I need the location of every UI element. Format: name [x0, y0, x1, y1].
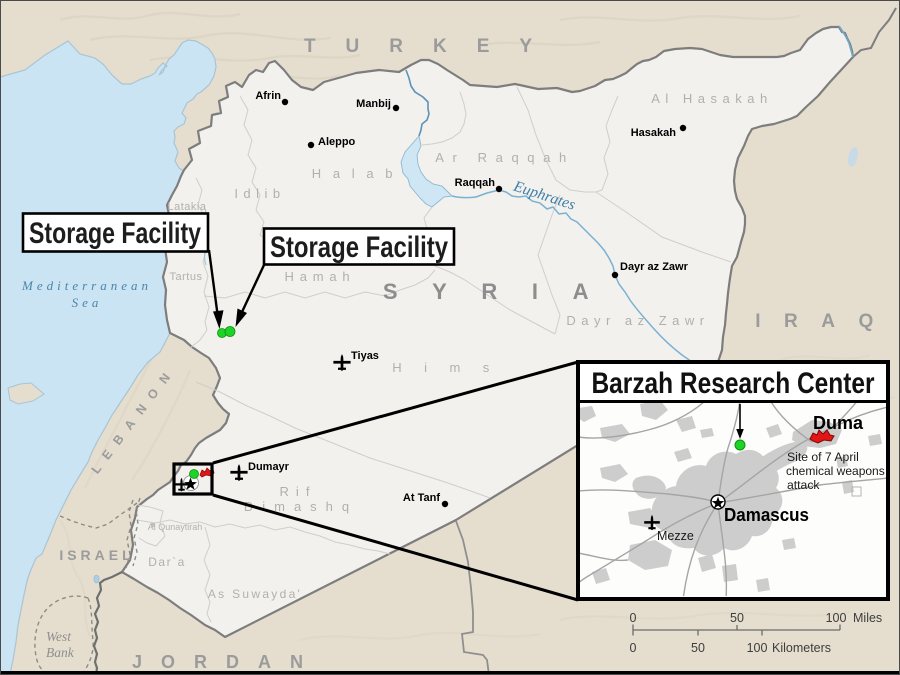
svg-text:Rif: Rif [280, 484, 317, 499]
svg-text:IRAQ: IRAQ [755, 311, 897, 332]
svg-text:Hasakah: Hasakah [631, 127, 677, 139]
svg-text:Latakia: Latakia [168, 201, 207, 213]
svg-text:attack: attack [787, 478, 820, 492]
svg-text:Sea: Sea [72, 295, 103, 310]
svg-text:Idlib: Idlib [234, 186, 285, 201]
svg-text:Tartus: Tartus [170, 271, 203, 283]
svg-text:100: 100 [747, 641, 768, 655]
svg-text:Kilometers: Kilometers [772, 641, 831, 655]
svg-text:0: 0 [630, 611, 637, 625]
svg-text:West: West [46, 629, 72, 644]
svg-text:Site of 7 April: Site of 7 April [787, 450, 859, 464]
svg-text:Duma: Duma [813, 413, 864, 433]
svg-text:Aleppo: Aleppo [318, 136, 356, 148]
svg-text:At Tanf: At Tanf [403, 492, 440, 504]
svg-text:50: 50 [691, 641, 705, 655]
svg-text:Dayr az Zawr: Dayr az Zawr [620, 261, 689, 273]
svg-text:JORDAN: JORDAN [132, 652, 322, 672]
svg-text:chemical weapons: chemical weapons [786, 464, 885, 478]
svg-text:TURKEY: TURKEY [304, 36, 562, 57]
svg-text:Tiyas: Tiyas [351, 350, 379, 362]
svg-text:SYRIA: SYRIA [383, 279, 623, 304]
svg-text:Hims: Hims [392, 360, 512, 375]
svg-text:Barzah Research Center: Barzah Research Center [592, 367, 875, 400]
svg-text:Halab: Halab [312, 166, 404, 181]
svg-text:Mediterranean: Mediterranean [21, 278, 152, 293]
svg-text:0: 0 [630, 641, 637, 655]
svg-text:As Suwayda': As Suwayda' [208, 587, 302, 601]
svg-text:Ar Raqqah: Ar Raqqah [435, 150, 575, 165]
svg-text:Hamah: Hamah [285, 269, 356, 284]
svg-text:Mezze: Mezze [657, 529, 694, 543]
svg-text:Dumayr: Dumayr [248, 461, 290, 473]
svg-text:50: 50 [730, 611, 744, 625]
svg-text:Bank: Bank [46, 645, 75, 660]
svg-text:Damascus: Damascus [724, 505, 809, 525]
svg-text:Al Qunaytirah: Al Qunaytirah [148, 522, 203, 532]
svg-text:ISRAEL: ISRAEL [59, 547, 134, 563]
svg-text:Dayr az Zawr: Dayr az Zawr [566, 313, 709, 328]
svg-text:Raqqah: Raqqah [455, 177, 496, 189]
svg-text:Al Hasakah: Al Hasakah [651, 91, 772, 106]
svg-text:100: 100 [826, 611, 847, 625]
svg-text:Dimashq: Dimashq [244, 499, 358, 514]
svg-text:Afrin: Afrin [255, 90, 281, 102]
svg-text:Dar`a: Dar`a [148, 555, 186, 569]
svg-text:Manbij: Manbij [356, 98, 391, 110]
svg-text:Miles: Miles [853, 611, 882, 625]
svg-text:Storage Facility: Storage Facility [29, 217, 201, 250]
svg-text:Storage Facility: Storage Facility [270, 231, 448, 264]
